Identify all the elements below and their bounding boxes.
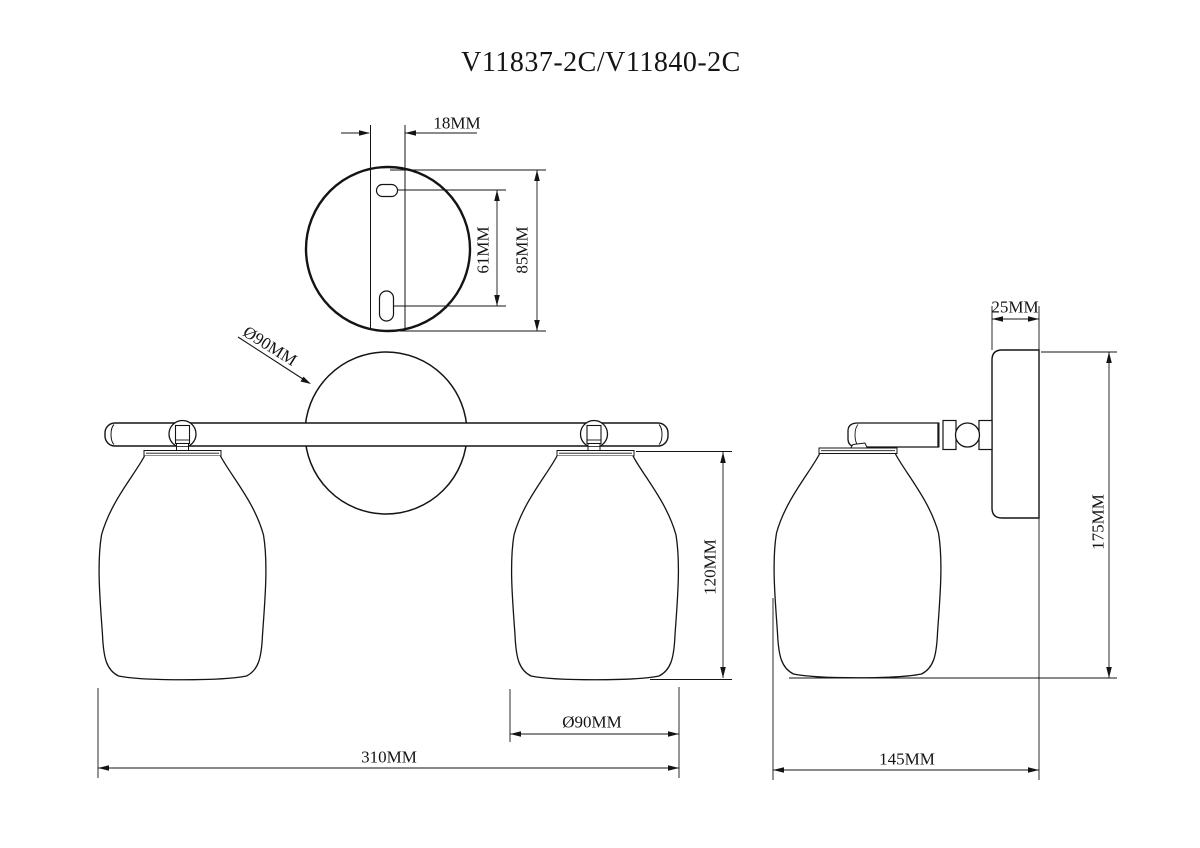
ball-joint bbox=[956, 423, 980, 447]
dim-label-side-overall-height: 175MM bbox=[1090, 494, 1107, 550]
glass-shade-left bbox=[99, 456, 266, 680]
keyhole-slot-bottom bbox=[380, 291, 394, 321]
dim-label-top-hole-spacing: 61MM bbox=[475, 226, 492, 273]
wall-backplate bbox=[992, 350, 1039, 518]
front-view bbox=[98, 337, 732, 778]
lamp-holder-right bbox=[581, 421, 608, 453]
dim-label-top-plate-diameter: 85MM bbox=[514, 226, 531, 273]
joint-socket-wall bbox=[979, 421, 992, 450]
holder-block bbox=[176, 426, 190, 444]
joint-socket-front bbox=[943, 421, 956, 450]
lamp-holder-left bbox=[169, 421, 196, 453]
glass-shade-right bbox=[512, 456, 679, 680]
dim-shade-90mm bbox=[510, 687, 679, 778]
dim-label-side-overall-depth: 145MM bbox=[879, 751, 935, 768]
dim-label-front-shade-height: 120MM bbox=[702, 539, 719, 595]
glass-shade-side bbox=[774, 454, 941, 678]
drawing-title: V11837-2C/V11840-2C bbox=[461, 47, 741, 79]
side-view bbox=[773, 306, 1117, 780]
dim-label-top-slot-offset: 18MM bbox=[433, 115, 480, 132]
dim-label-front-shade-diameter: Ø90MM bbox=[562, 714, 622, 731]
technical-drawing-page: V11837-2C/V11840-2C 18MM 61MM 85MM Ø90MM… bbox=[0, 0, 1200, 848]
dim-label-side-backplate-depth: 25MM bbox=[991, 299, 1038, 316]
keyhole-slot-top bbox=[377, 185, 398, 197]
top-view bbox=[306, 125, 546, 331]
dim-label-front-overall-width: 310MM bbox=[361, 749, 417, 766]
holder-block bbox=[587, 426, 601, 444]
